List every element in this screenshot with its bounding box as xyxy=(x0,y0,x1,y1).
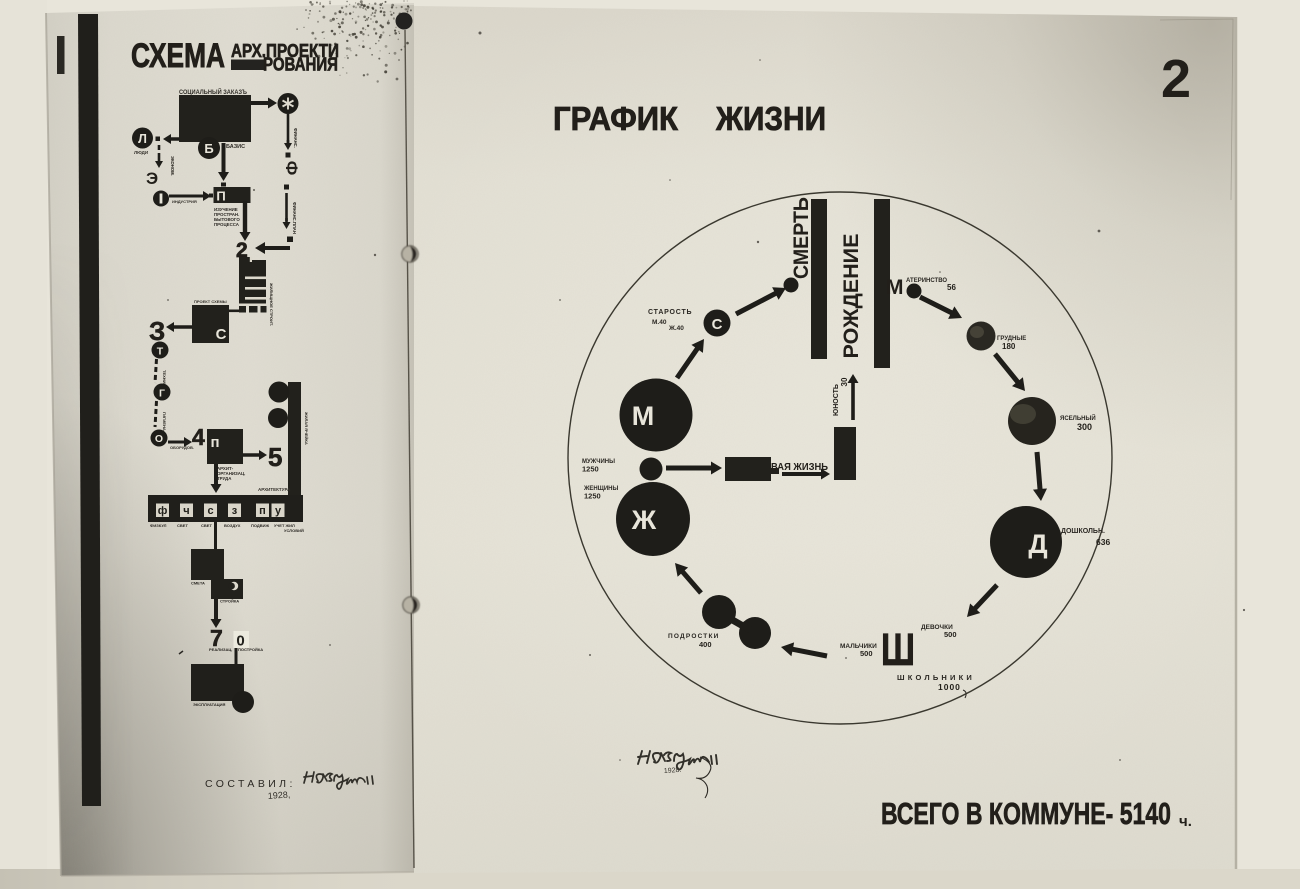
svg-text:1928,: 1928, xyxy=(267,789,290,801)
svg-text:5: 5 xyxy=(268,442,282,472)
svg-text:56: 56 xyxy=(947,283,956,292)
svg-text:ч: ч xyxy=(183,505,189,517)
svg-text:1250: 1250 xyxy=(582,465,599,474)
svg-text:ПОСТРОЙКА: ПОСТРОЙКА xyxy=(238,647,263,652)
svg-text:ЭКСПЛУАТАЦИЯ: ЭКСПЛУАТАЦИЯ xyxy=(193,702,226,707)
svg-text:ПРОЦЕССА: ПРОЦЕССА xyxy=(214,222,240,227)
svg-text:ТРУДА: ТРУДА xyxy=(217,476,232,481)
svg-text:з: з xyxy=(232,505,238,517)
svg-text:М: М xyxy=(886,276,904,299)
svg-text:180: 180 xyxy=(1002,342,1016,351)
svg-text:ИНДУСТРИЯ: ИНДУСТРИЯ xyxy=(172,199,197,204)
svg-text:п: п xyxy=(259,505,266,517)
svg-text:ГИГИЕНА: ГИГИЕНА xyxy=(162,412,167,431)
svg-text:Ж.40: Ж.40 xyxy=(668,325,684,332)
svg-text:ДОШКОЛЬН.: ДОШКОЛЬН. xyxy=(1061,528,1105,535)
svg-text:СОСТАВИЛ:: СОСТАВИЛ: xyxy=(205,778,296,790)
svg-text:ШКОЛЬНИКИ: ШКОЛЬНИКИ xyxy=(897,673,975,682)
svg-text:ЖИЗНИ: ЖИЗНИ xyxy=(715,100,826,137)
svg-text:СМЕТА: СМЕТА xyxy=(191,581,205,586)
svg-text:З: З xyxy=(149,316,165,346)
svg-text:1928.: 1928. xyxy=(664,767,682,775)
svg-text:СХЕМА: СХЕМА xyxy=(131,37,225,75)
svg-text:ЖИЛАЯ ЯЧЕЙКА: ЖИЛАЯ ЯЧЕЙКА xyxy=(304,411,309,445)
svg-text:ПОДВИЖ: ПОДВИЖ xyxy=(251,523,270,528)
svg-text:СТРОЙКА: СТРОЙКА xyxy=(220,599,239,604)
svg-text:СТАРОСТЬ: СТАРОСТЬ xyxy=(648,309,692,316)
svg-text:Л: Л xyxy=(138,132,147,146)
svg-text:СМЕРТЬ: СМЕРТЬ xyxy=(790,197,813,279)
svg-text:Г: Г xyxy=(159,388,165,400)
svg-text:у: у xyxy=(275,505,282,517)
svg-text:АТЕРИНСТВО: АТЕРИНСТВО xyxy=(906,278,947,284)
svg-text:30: 30 xyxy=(840,377,849,386)
svg-text:ЭКОНОМ.: ЭКОНОМ. xyxy=(170,156,175,176)
svg-text:ВОЗДУХ: ВОЗДУХ xyxy=(224,523,241,528)
svg-text:ч.: ч. xyxy=(1179,813,1192,830)
svg-text:ВСЕГО В КОММУНЕ- 5140: ВСЕГО В КОММУНЕ- 5140 xyxy=(881,796,1171,831)
svg-text:П: П xyxy=(216,189,225,204)
svg-text:ФИНАНС.ПЛАН: ФИНАНС.ПЛАН xyxy=(292,202,297,234)
svg-text:РЕАЛИЗАЦ.: РЕАЛИЗАЦ. xyxy=(209,647,232,652)
svg-text:ЮНОСТЬ: ЮНОСТЬ xyxy=(833,384,840,416)
svg-text:Б: Б xyxy=(204,141,213,156)
svg-text:2: 2 xyxy=(1161,49,1191,109)
svg-text:ФИНАНС.: ФИНАНС. xyxy=(293,128,298,148)
svg-text:500: 500 xyxy=(944,630,957,639)
svg-text:400: 400 xyxy=(699,640,712,649)
svg-text:1250: 1250 xyxy=(584,492,601,501)
svg-text:БАЗИС: БАЗИС xyxy=(226,144,245,150)
svg-text:Ф: Ф xyxy=(282,161,301,176)
svg-text:ф: ф xyxy=(158,505,168,517)
svg-text:636: 636 xyxy=(1096,537,1110,547)
svg-text:ЖИЛИЩНОЕ СТРОИТ.: ЖИЛИЩНОЕ СТРОИТ. xyxy=(269,282,274,326)
svg-text:Т: Т xyxy=(157,346,164,358)
svg-text:ОБОРУДОВ.: ОБОРУДОВ. xyxy=(170,445,194,450)
svg-text:500: 500 xyxy=(860,649,873,658)
svg-text:О: О xyxy=(155,433,163,445)
svg-text:ЛЮДИ: ЛЮДИ xyxy=(134,150,148,155)
svg-text:АРХИТЕКТУРА: АРХИТЕКТУРА xyxy=(258,487,291,492)
svg-text:С: С xyxy=(216,326,227,343)
svg-text:СОЦИАЛЬНЫЙ ЗАКАЗЪ: СОЦИАЛЬНЫЙ ЗАКАЗЪ xyxy=(179,88,247,96)
svg-text:4: 4 xyxy=(192,424,205,450)
svg-text:ФИЗКУЛ: ФИЗКУЛ xyxy=(150,523,167,528)
svg-text:Ш: Ш xyxy=(881,624,915,675)
svg-text:ПРОЕКТ СХЕМЫ: ПРОЕКТ СХЕМЫ xyxy=(194,299,227,304)
svg-text:УСЛОВИЙ: УСЛОВИЙ xyxy=(284,528,304,533)
svg-text:ЯСЕЛЬНЫЙ: ЯСЕЛЬНЫЙ xyxy=(1060,414,1096,422)
svg-text:Э: Э xyxy=(146,169,158,188)
svg-text:Д: Д xyxy=(1028,529,1047,559)
svg-text:С: С xyxy=(712,316,723,333)
svg-text:М.40: М.40 xyxy=(652,319,667,326)
svg-text:ГРАФИК: ГРАФИК xyxy=(553,100,679,137)
svg-text:1000: 1000 xyxy=(938,682,961,692)
svg-text:ВАЯ ЖИЗНЬ: ВАЯ ЖИЗНЬ xyxy=(771,462,828,473)
svg-text:РОВАНИЯ: РОВАНИЯ xyxy=(263,54,338,75)
svg-text:Ж: Ж xyxy=(631,505,657,535)
svg-text:М: М xyxy=(632,401,655,431)
svg-text:РОЖДЕНИЕ: РОЖДЕНИЕ xyxy=(840,234,863,359)
svg-text:СВЕТ: СВЕТ xyxy=(177,523,188,528)
svg-text:СВЕТ: СВЕТ xyxy=(201,523,212,528)
svg-text:ПОДРОСТКИ: ПОДРОСТКИ xyxy=(668,633,720,640)
svg-text:п: п xyxy=(210,434,219,451)
svg-text:с: с xyxy=(207,505,213,517)
svg-text:300: 300 xyxy=(1077,422,1092,432)
